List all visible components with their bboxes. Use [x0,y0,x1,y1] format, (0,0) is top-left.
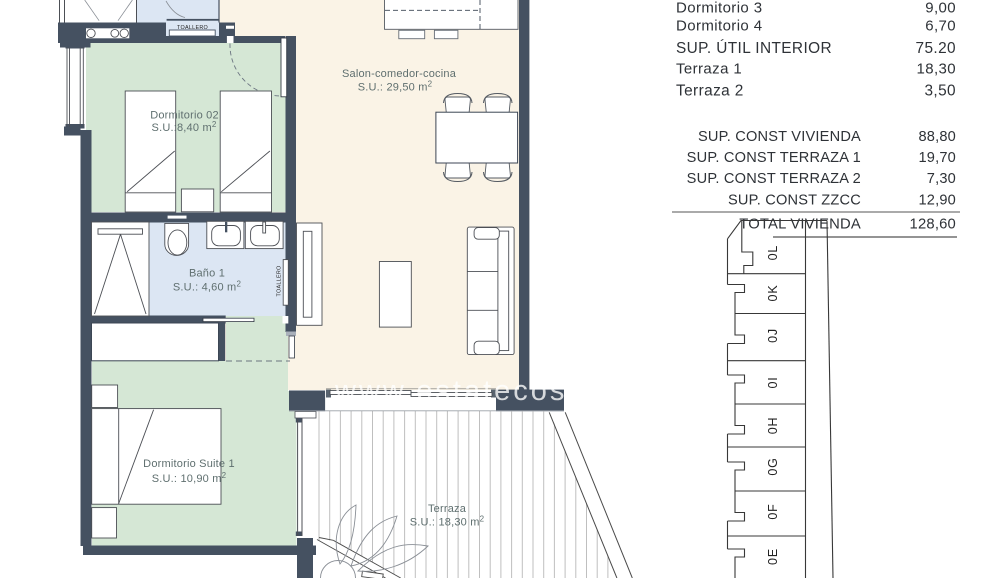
svg-text:Baño 1: Baño 1 [189,268,225,280]
svg-text:0F: 0F [766,503,780,519]
svg-text:9,00: 9,00 [925,0,956,17]
svg-text:0H: 0H [766,417,780,435]
svg-text:S.U.: 18,30 m2: S.U.: 18,30 m2 [410,515,485,529]
svg-text:TOTAL VIVIENDA: TOTAL VIVIENDA [739,217,861,233]
svg-text:SUP. CONST TERRAZA 1: SUP. CONST TERRAZA 1 [687,150,861,166]
svg-text:Dormitorio Suite 1: Dormitorio Suite 1 [143,458,235,470]
svg-text:S.U.: 29,50 m2: S.U.: 29,50 m2 [358,80,433,94]
svg-text:3,50: 3,50 [924,83,956,100]
svg-text:TOALLERO: TOALLERO [177,25,208,31]
svg-text:TOALLERO: TOALLERO [277,265,283,296]
svg-text:128,60: 128,60 [910,217,956,233]
svg-text:SUP. CONST ZZCC: SUP. CONST ZZCC [728,193,861,209]
svg-text:19,70: 19,70 [918,150,956,166]
svg-text:0G: 0G [766,457,780,475]
svg-text:7,30: 7,30 [927,171,956,187]
svg-text:Terraza 1: Terraza 1 [676,61,742,78]
svg-text:0E: 0E [766,548,780,565]
svg-text:Terraza: Terraza [428,503,467,515]
svg-text:0I: 0I [766,376,780,388]
svg-text:SUP. CONST TERRAZA 2: SUP. CONST TERRAZA 2 [687,171,861,187]
svg-text:6,70: 6,70 [925,18,956,35]
svg-text:12,90: 12,90 [918,193,956,209]
svg-text:18,30: 18,30 [916,61,956,78]
svg-text:S.U.:8,40 m2: S.U.:8,40 m2 [152,120,217,134]
svg-text:SUP. CONST VIVIENDA: SUP. CONST VIVIENDA [698,129,861,145]
svg-text:0L: 0L [766,245,780,261]
svg-text:88,80: 88,80 [918,129,956,145]
svg-text:Dormitorio 02: Dormitorio 02 [150,110,219,122]
svg-text:Dormitorio 3: Dormitorio 3 [676,0,763,17]
svg-text:S.U.: 4,60 m2: S.U.: 4,60 m2 [173,280,242,294]
svg-text:75.20: 75.20 [915,40,956,57]
svg-text:S.U.: 10,90 m2: S.U.: 10,90 m2 [152,471,227,485]
svg-text:0J: 0J [766,328,780,343]
svg-text:0K: 0K [766,285,780,302]
svg-text:Terraza 2: Terraza 2 [676,83,744,100]
svg-text:Dormitorio 4: Dormitorio 4 [676,18,763,35]
svg-text:SUP. ÚTIL INTERIOR: SUP. ÚTIL INTERIOR [676,40,832,57]
svg-text:www.estatecosta: www.estatecosta [334,375,598,407]
svg-text:Salon-comedor-cocina: Salon-comedor-cocina [342,68,457,80]
